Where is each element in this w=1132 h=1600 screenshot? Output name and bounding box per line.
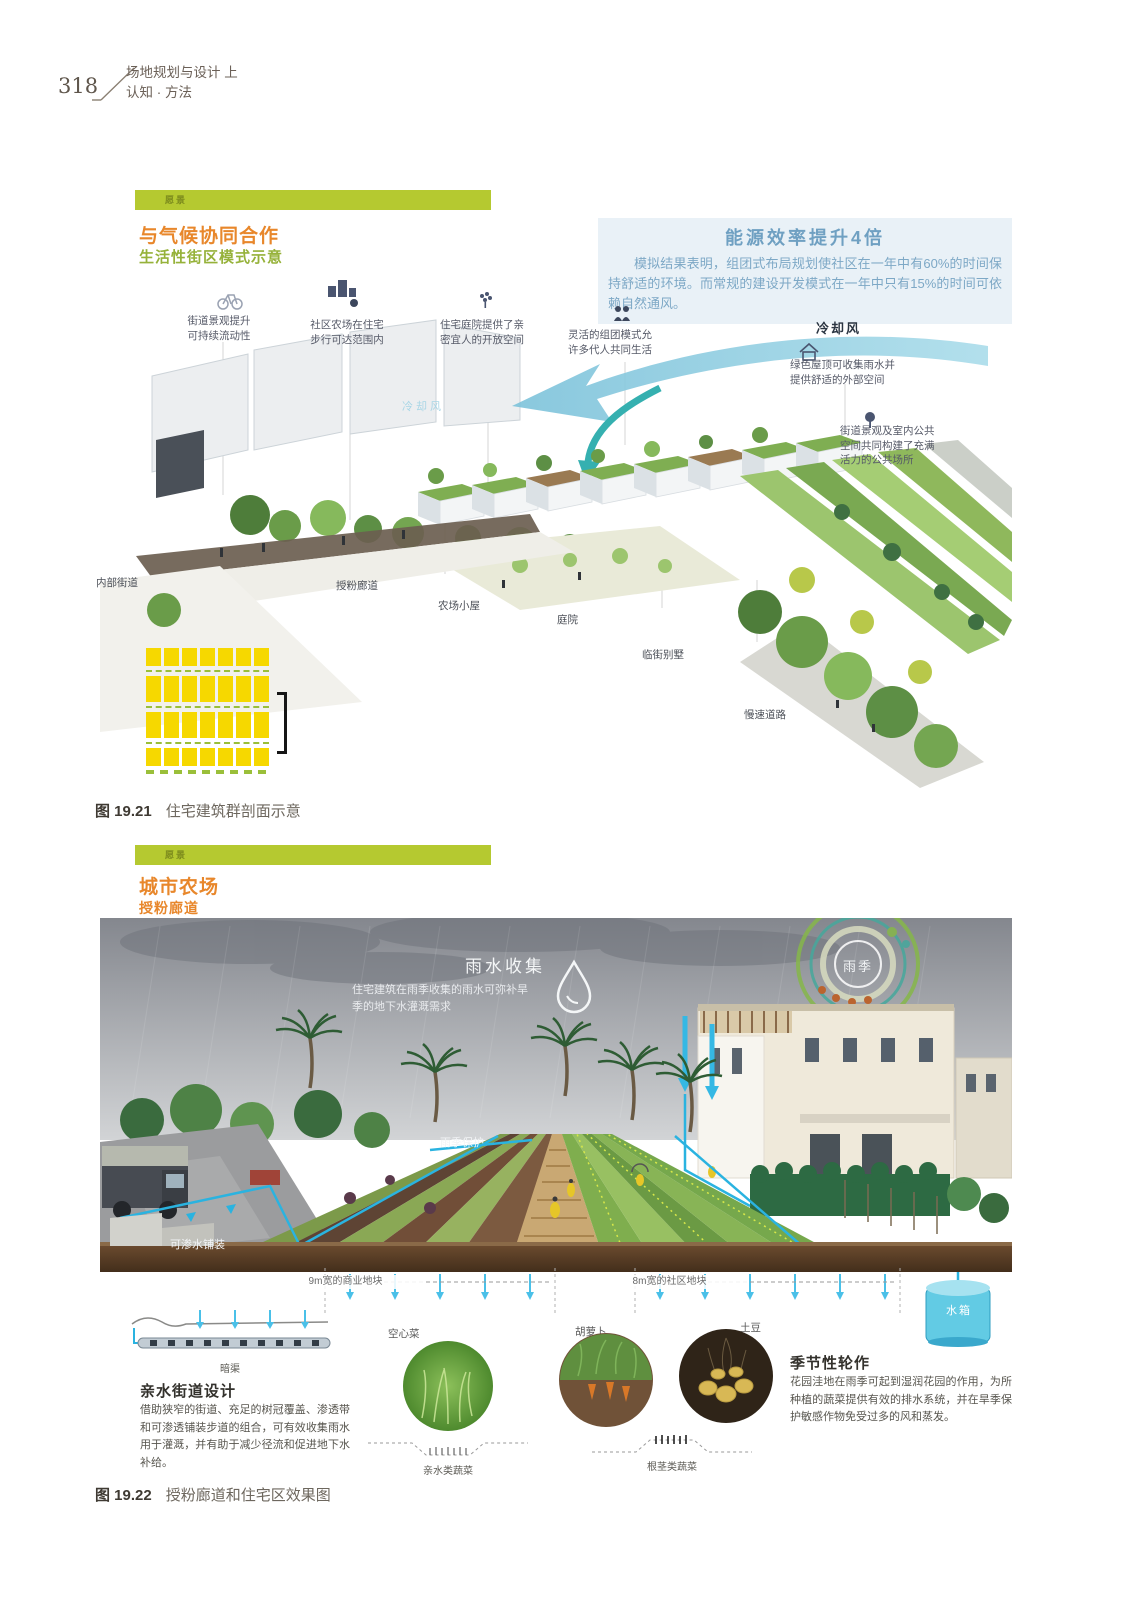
root-veg-caption: 根茎类蔬菜 — [592, 1458, 752, 1473]
running-head-line2: 认知 · 方法 — [126, 83, 238, 103]
plan-bracket — [277, 692, 287, 754]
plan-divider — [146, 742, 269, 744]
plan-green-strip — [146, 770, 269, 774]
running-head: 场地规划与设计 上 认知 · 方法 — [126, 63, 238, 104]
callout-public-space: 街道景观及室内公共 空间共同构建了充满 活力的公共场所 — [840, 424, 982, 468]
callout-courtyard-space: 住宅庭院提供了亲 密宜人的开放空间 — [418, 318, 546, 347]
water-street-title: 亲水街道设计 — [140, 1380, 236, 1401]
dark-facade — [156, 430, 204, 498]
plan-row — [146, 712, 269, 738]
plan-row — [146, 748, 269, 766]
soil-section — [100, 1246, 1012, 1272]
figure1-section-tag: 愿景 — [135, 190, 491, 210]
swale-section-diagram — [128, 1308, 338, 1358]
root-veg-mound-diagram — [592, 1434, 752, 1458]
carrot-photo — [558, 1332, 654, 1428]
people-icon — [614, 306, 630, 321]
running-head-line1: 场地规划与设计 上 — [126, 63, 238, 83]
label-street-villa: 临街别墅 — [642, 647, 684, 662]
figure2-caption-text: 授粉廊道和住宅区效果图 — [166, 1487, 331, 1504]
plan-divider — [146, 670, 269, 672]
hydrophilic-veg-caption: 亲水类蔬菜 — [368, 1462, 528, 1477]
rainy-season-label: 雨季 — [843, 956, 873, 975]
commercial-plot-dimension: 9m宽的商业地块 — [268, 1275, 423, 1289]
figure1-caption: 图 19.21住宅建筑群剖面示意 — [95, 800, 301, 821]
seasonal-rotation-body: 花园洼地在雨季可起到湿润花园的作用，为所种植的蔬菜提供有效的排水系统，并在旱季保… — [790, 1374, 1012, 1427]
figure2-caption-id: 图 19.22 — [95, 1487, 152, 1504]
rain-collection-title: 雨水收集 — [400, 952, 545, 977]
left-tree — [147, 593, 181, 627]
rain-collection-body: 住宅建筑在雨季收集的雨水可弥补旱 季的地下水灌溉需求 — [352, 982, 592, 1015]
figure2-subtitle: 授粉廊道 — [139, 898, 199, 918]
label-courtyard: 庭院 — [557, 612, 578, 627]
figure2-section-tag: 愿景 — [135, 845, 491, 865]
energy-title: 能源效率提升4倍 — [608, 224, 1002, 250]
callout-flexible-cluster: 灵活的组团模式允 许多代人共同生活 — [568, 328, 690, 357]
callout-green-roof: 绿色屋顶可收集雨水并 提供舒适的外部空间 — [790, 358, 958, 387]
permeable-paving-label: 可渗水铺装 — [170, 1236, 225, 1252]
water-spinach-label: 空心菜 — [388, 1326, 420, 1341]
seasonal-rotation-title: 季节性轮作 — [790, 1352, 870, 1373]
water-tank-label: 水箱 — [934, 1302, 984, 1318]
figure1-subtitle: 生活性街区模式示意 — [139, 246, 283, 267]
callout-community-farm: 社区农场在住宅 步行可达范围内 — [288, 318, 406, 347]
figure2-tag-label: 愿景 — [165, 845, 187, 865]
potato-photo — [678, 1328, 774, 1424]
rain-protection-label: 雨季保护 — [440, 1134, 484, 1150]
water-spinach-photo — [402, 1340, 494, 1432]
hydrophilic-basin-diagram — [368, 1438, 528, 1460]
cooling-wind-watermark: 冷却风 — [402, 398, 444, 414]
label-farm-cabin: 农场小屋 — [438, 598, 480, 613]
label-pollination-corridor: 授粉廊道 — [336, 578, 378, 593]
figure1-title: 与气候协同合作 — [139, 221, 279, 248]
culvert-label: 暗渠 — [160, 1360, 300, 1375]
parked-car — [250, 1170, 280, 1185]
plan-divider — [146, 706, 269, 708]
community-icon — [328, 280, 358, 307]
plan-row — [146, 648, 269, 666]
figure2-caption: 图 19.22授粉廊道和住宅区效果图 — [95, 1484, 331, 1505]
community-plot-dimension: 8m宽的社区地块 — [592, 1275, 747, 1289]
label-inner-street: 内部街道 — [96, 575, 138, 590]
figure1-caption-text: 住宅建筑群剖面示意 — [166, 803, 301, 820]
figure1-caption-id: 图 19.21 — [95, 803, 152, 820]
side-garden — [947, 1177, 1009, 1223]
bicycle-icon — [218, 295, 242, 309]
flower-icon — [480, 292, 492, 308]
plan-row — [146, 676, 269, 702]
cooling-wind-label: 冷却风 — [816, 318, 861, 337]
callout-street-landscape: 街道景观提升 可持续流动性 — [163, 314, 275, 343]
figure2-title: 城市农场 — [139, 872, 219, 899]
water-street-body: 借助狭窄的街道、充足的树冠覆盖、渗透带和可渗透铺装步道的组合，可有效收集雨水用于… — [140, 1402, 350, 1472]
site-plan-diagram — [146, 648, 269, 774]
label-slow-road: 慢速道路 — [744, 707, 786, 722]
figure1-tag-label: 愿景 — [165, 190, 187, 210]
book-page: 318 场地规划与设计 上 认知 · 方法 愿景 与气候协同合作 生活性街区模式… — [0, 0, 1132, 1600]
hedge — [750, 1162, 950, 1216]
